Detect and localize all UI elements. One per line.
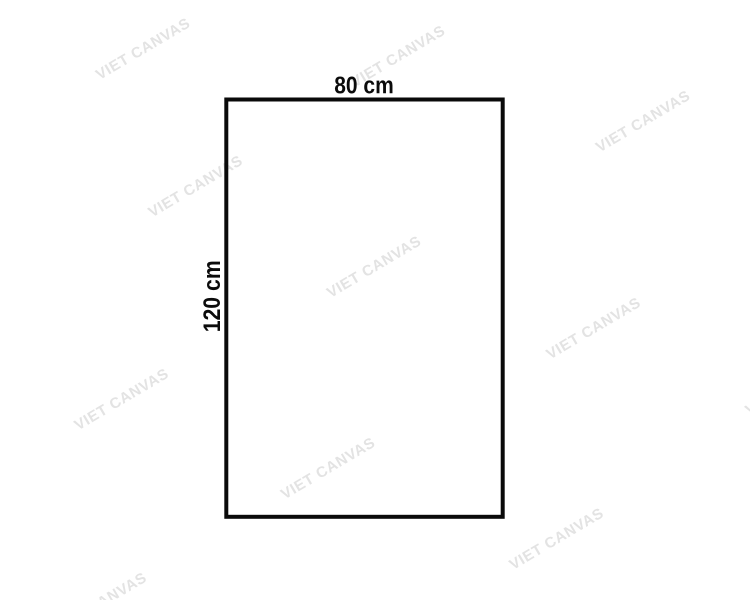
svg-text:120 cm: 120 cm bbox=[199, 260, 226, 332]
svg-text:80 cm: 80 cm bbox=[334, 72, 394, 99]
